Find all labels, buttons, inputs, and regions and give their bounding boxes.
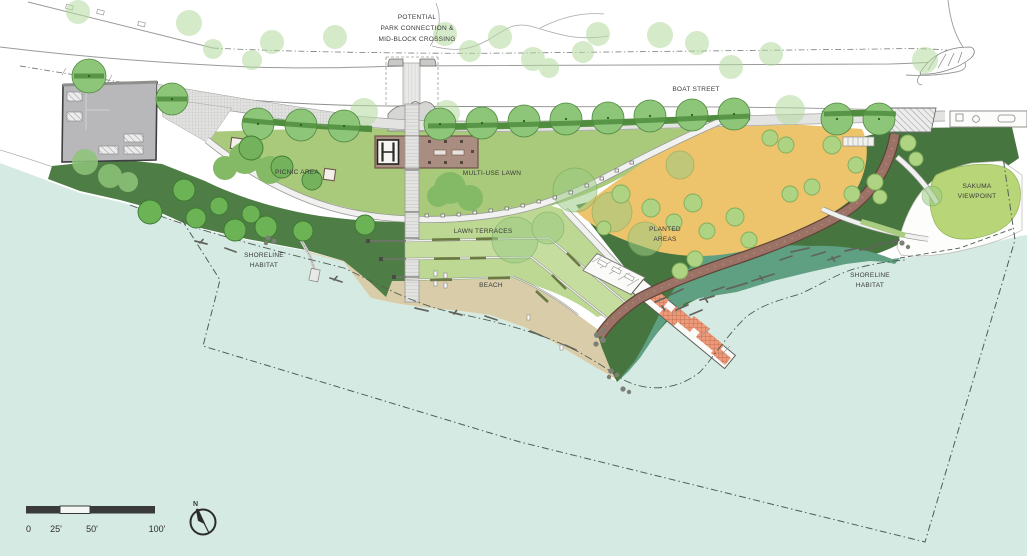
svg-text:AREAS: AREAS [653,236,677,243]
svg-text:100': 100' [149,524,166,534]
svg-text:PLANTED: PLANTED [649,226,681,233]
svg-text:25': 25' [50,524,62,534]
svg-text:POTENTIAL: POTENTIAL [398,14,437,21]
svg-text:HABITAT: HABITAT [250,262,278,269]
svg-text:50': 50' [86,524,98,534]
svg-text:HABITAT: HABITAT [856,282,884,289]
svg-text:MULTI-USE LAWN: MULTI-USE LAWN [463,170,521,177]
svg-text:0: 0 [26,524,31,534]
svg-text:PARK CONNECTION &: PARK CONNECTION & [380,25,454,32]
svg-text:N: N [193,501,198,508]
svg-text:SHORELINE: SHORELINE [850,272,890,279]
svg-text:BOAT STREET: BOAT STREET [672,86,719,93]
svg-text:SHORELINE: SHORELINE [244,252,284,259]
svg-text:SAKUMA: SAKUMA [963,183,992,190]
svg-text:LAWN TERRACES: LAWN TERRACES [454,228,513,235]
svg-text:MID-BLOCK CROSSING: MID-BLOCK CROSSING [378,36,455,43]
svg-text:VIEWPOINT: VIEWPOINT [958,193,997,200]
svg-text:BEACH: BEACH [479,282,503,289]
svg-text:PICNIC AREA: PICNIC AREA [275,169,319,176]
